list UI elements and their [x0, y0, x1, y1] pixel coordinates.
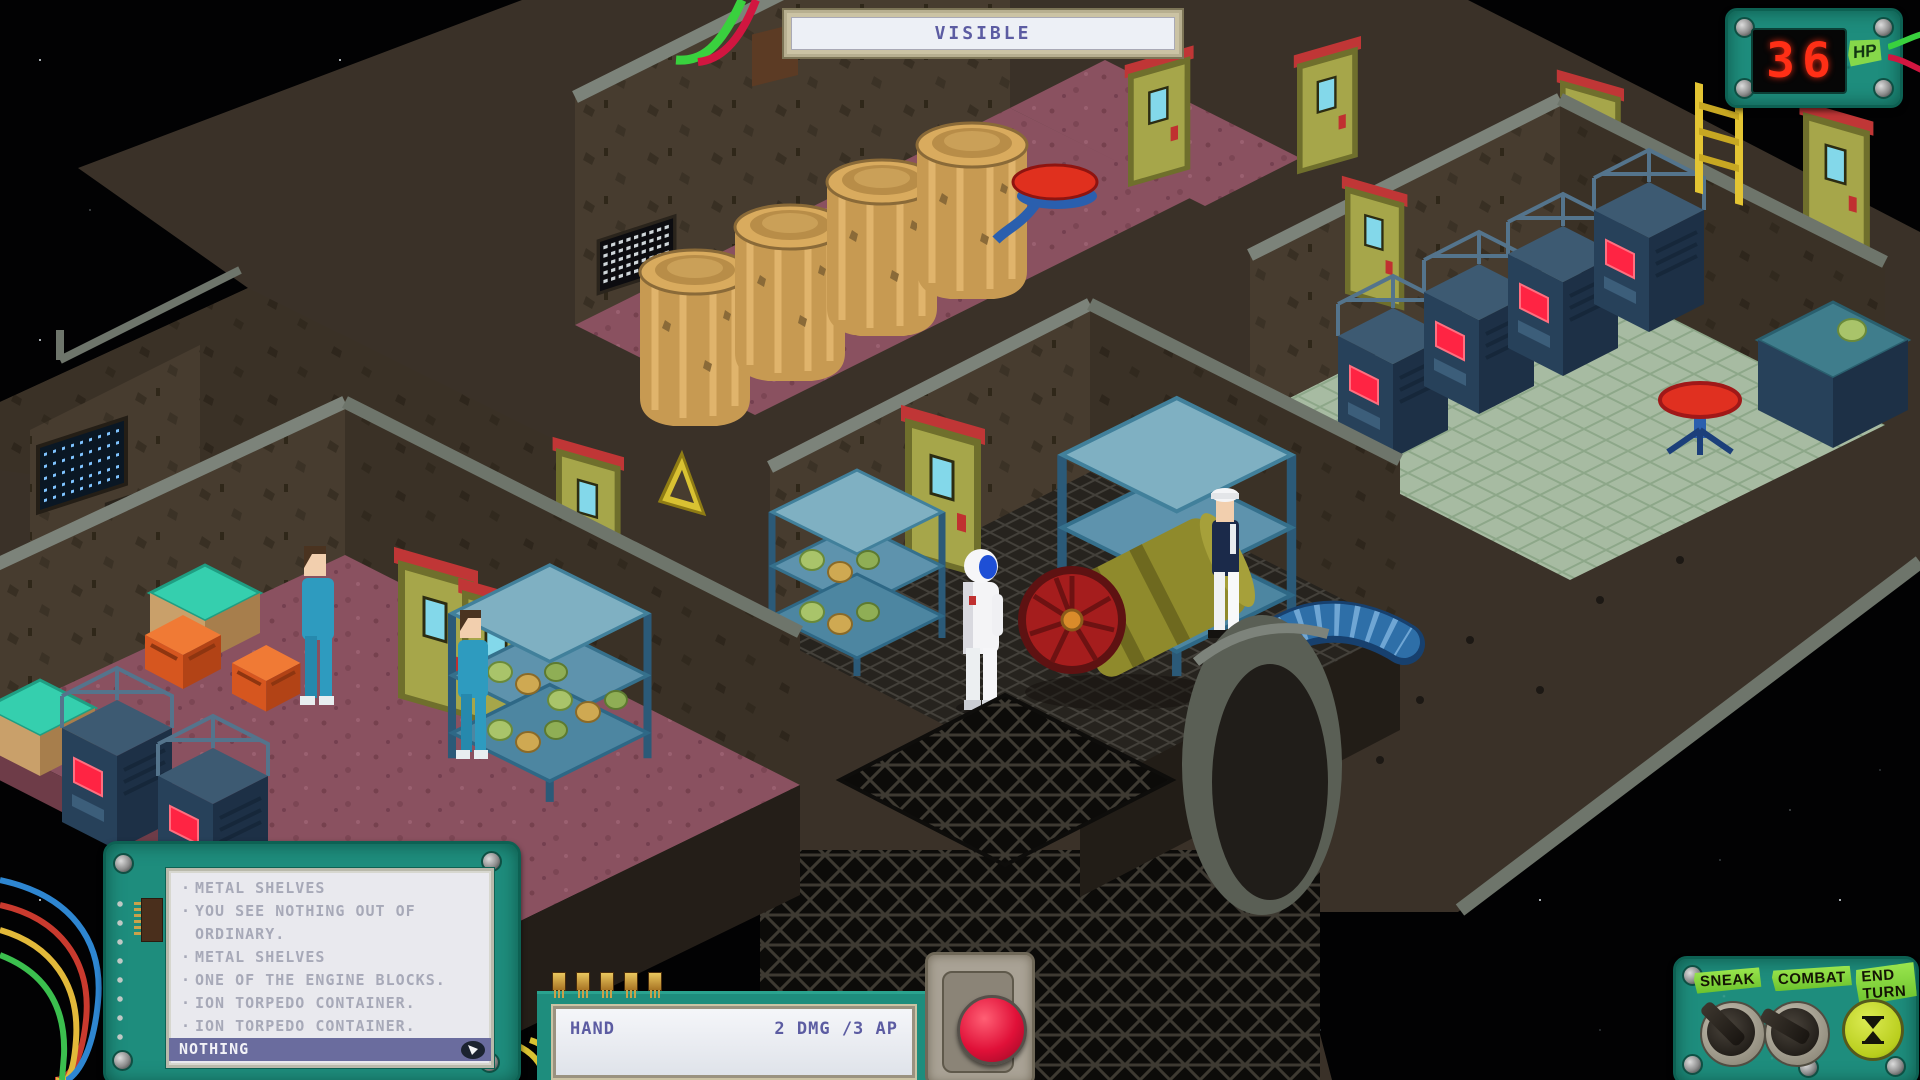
hp-wires [1888, 29, 1920, 89]
log-entry-selected[interactable]: NOTHING [169, 1038, 491, 1061]
hp-screen: 36 [1751, 28, 1847, 94]
cursor-icon [461, 1041, 485, 1059]
transistor-icon [552, 972, 566, 991]
action-button-panel [925, 952, 1035, 1080]
hp-display: 36 HP [1725, 8, 1903, 108]
transistor-icon [624, 972, 638, 991]
transistor-icon [600, 972, 614, 991]
transistor-row [552, 972, 662, 992]
door[interactable] [1294, 36, 1361, 175]
action-button[interactable] [957, 995, 1027, 1065]
screw-icon [112, 1050, 133, 1071]
screw-icon [1682, 1054, 1703, 1075]
transistor-icon [576, 972, 590, 991]
action-button-well [942, 971, 1014, 1073]
combat-knob[interactable] [1771, 1008, 1819, 1056]
chip-icon [141, 898, 163, 942]
control-panel: SNEAK COMBAT END TURN [1673, 956, 1919, 1080]
hand-stats: 2 DMG /3 AP [774, 1019, 898, 1039]
sneak-knob-base [1700, 1001, 1766, 1067]
end-turn-button[interactable] [1842, 999, 1904, 1061]
sneak-label: SNEAK [1693, 967, 1761, 993]
visibility-label: VISIBLE [935, 23, 1032, 44]
combat-knob-base [1764, 1001, 1830, 1067]
message-log: METAL SHELVES YOU SEE NOTHING OUT OF ORD… [103, 841, 521, 1080]
hand-slot[interactable]: HAND 2 DMG /3 AP [553, 1006, 915, 1078]
visibility-banner: VISIBLE [782, 8, 1184, 59]
hp-label: HP [1848, 37, 1881, 67]
screw-icon [113, 853, 134, 874]
log-entry[interactable]: YOU SEE NOTHING OUT OF ORDINARY. [169, 900, 491, 946]
visibility-banner-screen: VISIBLE [791, 17, 1175, 50]
hp-value: 36 [1766, 37, 1838, 85]
log-entry[interactable]: ION TORPEDO CONTAINER. [169, 1015, 491, 1038]
log-screen: METAL SHELVES YOU SEE NOTHING OUT OF ORD… [166, 868, 494, 1068]
hourglass-icon [1862, 1016, 1884, 1044]
door[interactable] [1342, 176, 1408, 312]
solder-pins [116, 896, 132, 1046]
log-entry[interactable]: ION TORPEDO CONTAINER. [169, 992, 491, 1015]
log-entry[interactable]: METAL SHELVES [169, 946, 491, 969]
screw-icon [1885, 1056, 1906, 1077]
hand-label: HAND [570, 1019, 615, 1039]
door[interactable] [1125, 45, 1194, 188]
transistor-icon [648, 972, 662, 991]
log-entry[interactable]: ONE OF THE ENGINE BLOCKS. [169, 969, 491, 992]
sneak-knob[interactable] [1707, 1008, 1755, 1056]
game-screen: { "banner": { "label": "VISIBLE" }, "hp"… [0, 0, 1920, 1080]
combat-label: COMBAT [1772, 966, 1852, 992]
log-entry[interactable]: METAL SHELVES [169, 877, 491, 900]
